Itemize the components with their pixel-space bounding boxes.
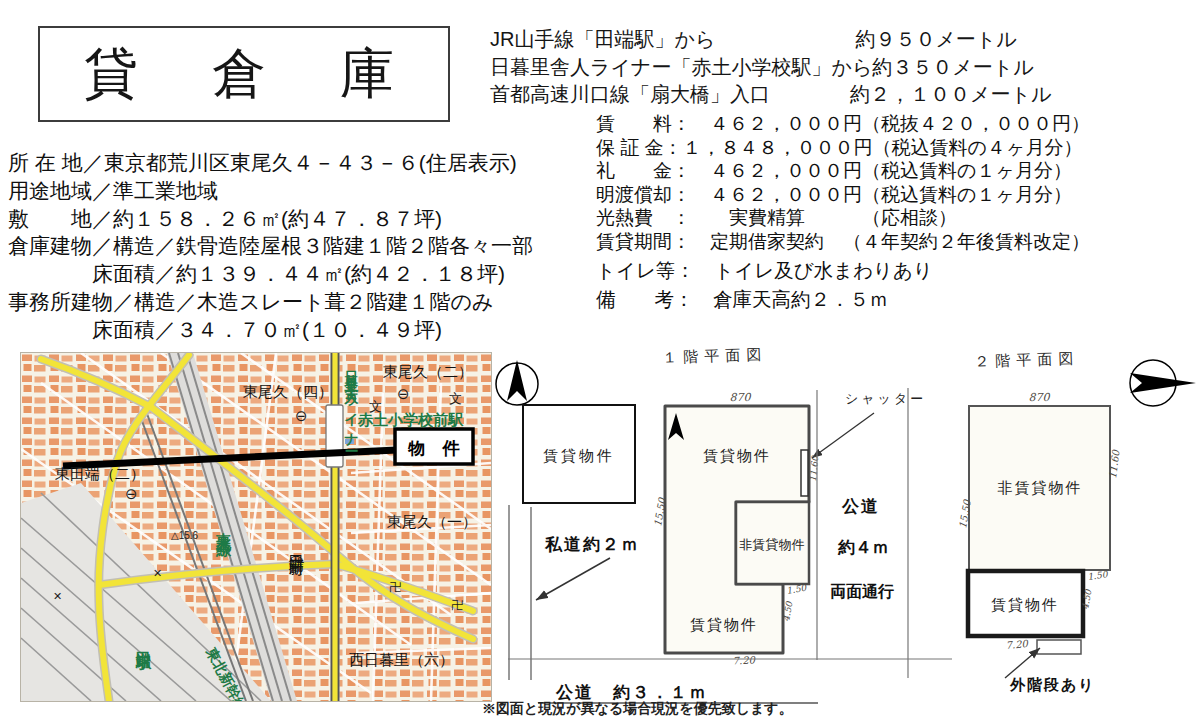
police-icon: ✕	[153, 567, 162, 579]
area-label: 西日暮里（六）	[349, 651, 454, 668]
property-line: 用途地域／準工業地域	[8, 177, 533, 205]
temple-icon: 卍	[451, 598, 463, 612]
dim-bottom: 7.20	[732, 654, 756, 666]
access-info: JR山手線「田端駅」から 約９５０メートル 日暮里舎人ライナー「赤土小学校駅」か…	[490, 26, 1051, 109]
flyer-page: 貸 倉 庫 JR山手線「田端駅」から 約９５０メートル 日暮里舎人ライナー「赤土…	[0, 0, 1200, 722]
plan2-title: ２階平面図	[974, 349, 1080, 371]
lease-terms: 賃 料： ４６２，０００円（税抜４２０，０００円） 保 証 金：１，８４８，００…	[596, 112, 1090, 254]
akado-station-box	[326, 405, 343, 467]
plan2-rental-label: 賃貸物件	[991, 596, 1059, 613]
plans-svg: １階平面図 賃貸物件 私道約２ｍ	[490, 338, 1200, 722]
shutter-arrow	[812, 413, 874, 458]
property-line: 敷 地／約１５８．２６㎡(約４７．８７坪)	[8, 205, 533, 233]
plan1-upper-label: 賃貸物件	[703, 447, 771, 464]
plan1-title: １階平面図	[662, 345, 768, 367]
elevation-label: △15.6	[171, 530, 199, 541]
private-road-arrow	[536, 558, 610, 600]
stair-arrow	[1005, 648, 1040, 678]
term-line: 明渡償却： ４６２，０００円（税込賃料の１ヶ月分）	[596, 183, 1090, 207]
plan2: ２階平面図 非賃貸物件 賃貸物件 870 15.50 11.60 1.50 4.…	[957, 349, 1196, 694]
floor-plans: １階平面図 賃貸物件 私道約２ｍ	[490, 338, 1200, 722]
location-map: 物 件 文 文 ⊖ ⊖ ⊖ 卍 卍 ✕ ✕ 東尾久（四） 東尾久（二） 東尾久（…	[20, 352, 492, 702]
post-icon: ⊖	[397, 385, 410, 402]
shutter-label: シャッター	[845, 391, 926, 406]
temple-icon: 卍	[389, 580, 401, 594]
dim-inner: 1.50	[1087, 569, 1109, 582]
property-line: 床面積／約１３９．４４㎡(約４２．１８坪)	[8, 260, 533, 288]
road-right-label: 両面通行	[830, 583, 894, 600]
liner-label: 日暮里・舎人ライナー	[343, 359, 360, 452]
access-line: 日暮里舎人ライナー「赤土小学校駅」から約３５０メートル	[490, 54, 1051, 82]
term-line: 光熱費 ： 実費精算 （応相談）	[596, 206, 1090, 230]
dim-top: 870	[1029, 391, 1051, 404]
road-right-label: 約４ｍ	[837, 538, 889, 557]
post-icon: ⊖	[125, 485, 138, 502]
police-icon: ✕	[53, 590, 62, 602]
term-line: トイレ等： トイレ及び水まわりあり	[596, 256, 933, 285]
area-label: 東田端（二）	[55, 465, 145, 482]
term-line: 保 証 金：１，８４８，０００円（税込賃料の４ヶ月分）	[596, 136, 1090, 160]
dim-right: 11.60	[1107, 448, 1122, 479]
area-label: 東尾久（四）	[243, 383, 333, 400]
plan2-stair-box	[1037, 640, 1081, 654]
station-label: 赤土小学校前駅	[357, 411, 464, 428]
term-line: 備 考： 倉庫天高約２．５ｍ	[596, 285, 933, 314]
area-label: 東尾久（一）	[387, 513, 477, 530]
east-compass-icon	[1130, 360, 1196, 406]
stair-label: 外階段あり	[1009, 676, 1096, 694]
plan1-lower-label: 賃貸物件	[690, 616, 758, 633]
private-road-label: 私道約２ｍ	[544, 535, 640, 554]
road-right-label: 公道	[841, 497, 880, 516]
map-svg: 物 件 文 文 ⊖ ⊖ ⊖ 卍 卍 ✕ ✕ 東尾久（四） 東尾久（二） 東尾久（…	[21, 353, 491, 701]
dim-bottom: 7.20	[1005, 638, 1030, 651]
property-line: 事務所建物／構造／木造スレート葺２階建１階のみ	[8, 288, 533, 316]
property-line: 床面積／３４．７０㎡(１０．４９坪)	[8, 316, 533, 344]
term-line: 賃貸期間： 定期借家契約 （４年契約２年後賃料改定）	[596, 230, 1090, 254]
dim-right: 11.60	[808, 454, 820, 482]
title-box: 貸 倉 庫	[38, 26, 450, 122]
plan1-office-label: 賃貸物件	[543, 447, 615, 464]
plan2-non-rental-label: 非賃貸物件	[998, 479, 1083, 496]
disclaimer: ※図面と現況が異なる場合現況を優先致します。	[482, 700, 793, 718]
plan1-shutter	[801, 450, 808, 496]
dim-top: 870	[730, 391, 752, 404]
plan1-non-rental-label: 非賃貸物件	[740, 537, 805, 552]
access-line: JR山手線「田端駅」から 約９５０メートル	[490, 26, 1051, 54]
page-title: 貸 倉 庫	[84, 38, 404, 111]
term-line: 礼 金： ４６２，０００円（税込賃料の１ヶ月分）	[596, 159, 1090, 183]
plan1: １階平面図 賃貸物件 私道約２ｍ	[496, 345, 952, 703]
property-line: 所 在 地／東京都荒川区東尾久４－４３－６(住居表示)	[8, 149, 533, 177]
post-icon: ⊖	[295, 407, 308, 424]
school-icon: 文	[449, 391, 462, 406]
access-line: 首都高速川口線「扇大橋」入口 約２，１００メートル	[490, 81, 1051, 109]
term-line: 賃 料： ４６２，０００円（税抜４２０，０００円）	[596, 112, 1090, 136]
property-details: 所 在 地／東京都荒川区東尾久４－４３－６(住居表示) 用途地域／準工業地域 敷…	[8, 149, 533, 344]
lease-terms-extra: トイレ等： トイレ及び水まわりあり 備 考： 倉庫天高約２．５ｍ	[596, 256, 933, 313]
property-line: 倉庫建物／構造／鉄骨造陸屋根３階建１階２階各々一部	[8, 232, 533, 260]
north-compass-icon	[496, 360, 538, 405]
area-label: 東尾久（二）	[383, 363, 473, 380]
property-marker-label: 物 件	[408, 439, 461, 458]
